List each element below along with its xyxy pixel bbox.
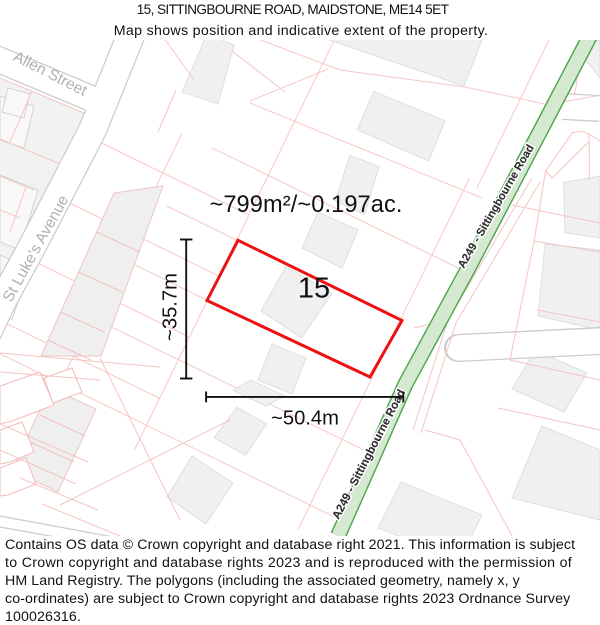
svg-text:15, SITTINGBOURNE ROAD, MAIDST: 15, SITTINGBOURNE ROAD, MAIDSTONE, ME14 … (137, 2, 449, 17)
svg-text:co-ordinates) are subject to C: co-ordinates) are subject to Crown copyr… (5, 591, 571, 607)
svg-text:~50.4m: ~50.4m (271, 408, 339, 430)
svg-text:to Crown copyright and databas: to Crown copyright and database rights 2… (5, 555, 572, 571)
svg-text:Map shows position and indicat: Map shows position and indicative extent… (114, 23, 488, 39)
svg-text:~35.7m: ~35.7m (160, 273, 182, 341)
svg-text:HM Land Registry. The polygons: HM Land Registry. The polygons (includin… (5, 573, 521, 589)
svg-text:~799m²/~0.197ac.: ~799m²/~0.197ac. (209, 192, 402, 218)
svg-text:100026316.: 100026316. (5, 609, 81, 625)
svg-text:15: 15 (298, 273, 330, 305)
svg-text:Contains OS data © Crown copyr: Contains OS data © Crown copyright and d… (5, 537, 575, 553)
